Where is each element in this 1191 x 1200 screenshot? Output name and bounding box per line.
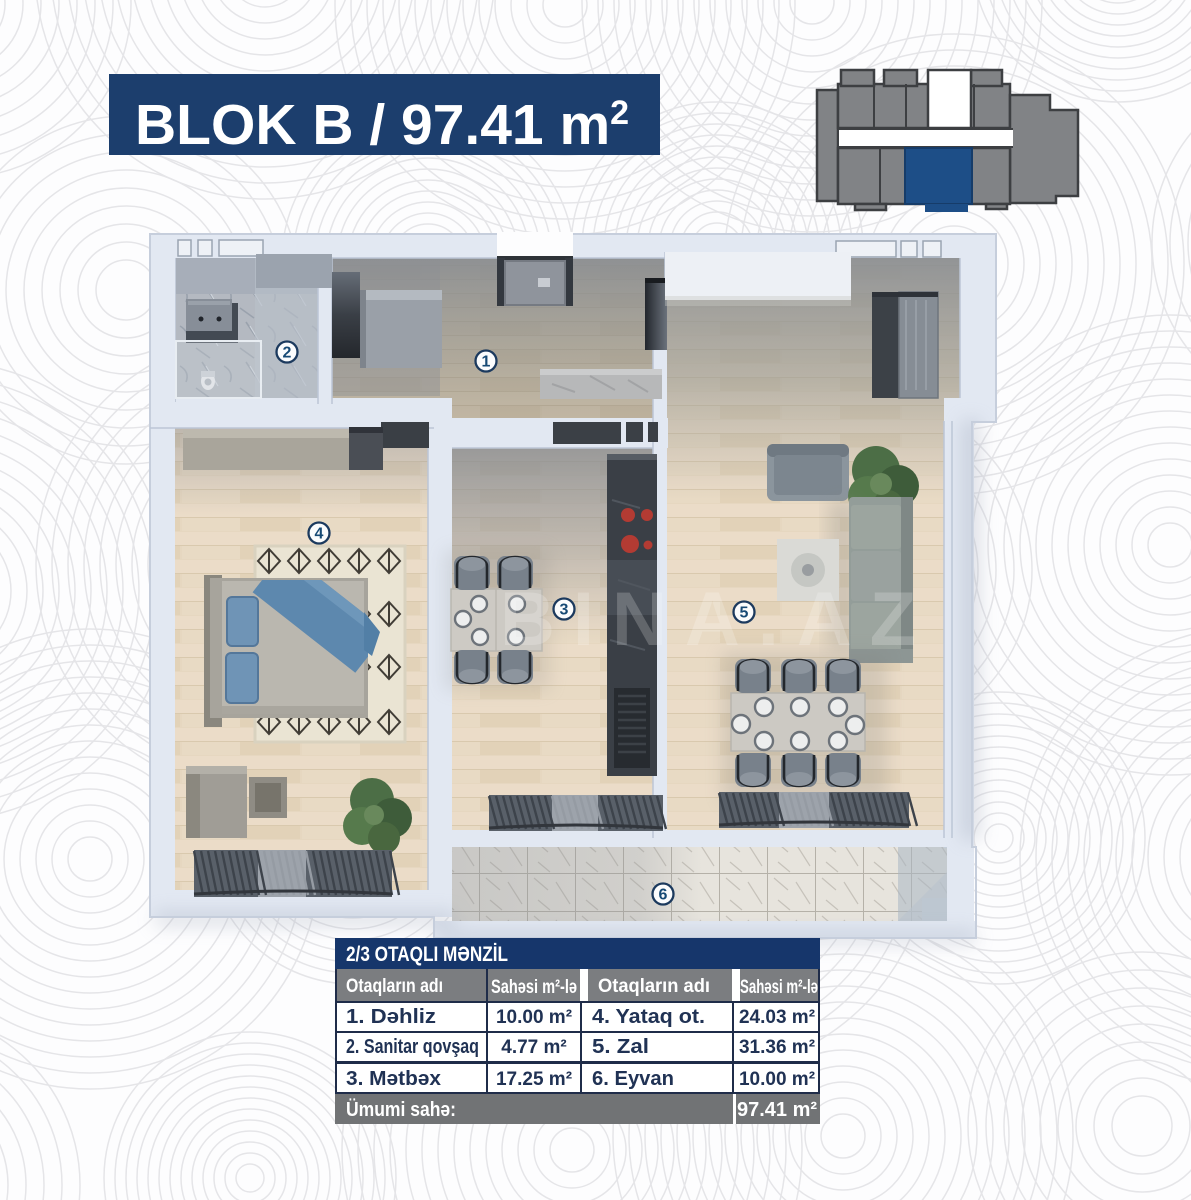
svg-text:4.77 m²: 4.77 m² <box>501 1037 566 1058</box>
svg-text:Sahəsi m²-lə: Sahəsi m²-lə <box>740 977 818 998</box>
svg-text:4. Yataq ot.: 4. Yataq ot. <box>592 1006 705 1028</box>
svg-text:1: 1 <box>482 354 491 371</box>
svg-text:4: 4 <box>315 526 324 543</box>
svg-text:2: 2 <box>283 345 292 362</box>
svg-text:2. Sanitar qovşaq: 2. Sanitar qovşaq <box>346 1036 479 1058</box>
svg-text:3: 3 <box>560 602 569 619</box>
svg-text:97.41 m²: 97.41 m² <box>737 1099 817 1121</box>
svg-text:Ümumi sahə:: Ümumi sahə: <box>346 1098 456 1121</box>
svg-text:1. Dəhliz: 1. Dəhliz <box>346 1006 436 1028</box>
svg-text:Otaqların adı: Otaqların adı <box>346 976 443 997</box>
svg-text:6: 6 <box>659 887 668 904</box>
svg-text:17.25 m²: 17.25 m² <box>496 1069 572 1090</box>
svg-text:Otaqların adı: Otaqların adı <box>598 976 710 997</box>
svg-text:10.00 m²: 10.00 m² <box>496 1007 572 1028</box>
svg-text:6. Eyvan: 6. Eyvan <box>592 1068 674 1090</box>
svg-text:2/3 OTAQLI MƏNZİL: 2/3 OTAQLI MƏNZİL <box>346 943 508 966</box>
svg-text:10.00 m²: 10.00 m² <box>739 1069 815 1090</box>
svg-text:5: 5 <box>740 605 749 622</box>
svg-text:3. Mətbəx: 3. Mətbəx <box>346 1068 441 1090</box>
svg-text:31.36 m²: 31.36 m² <box>739 1037 815 1058</box>
svg-text:Sahəsi m²-lə: Sahəsi m²-lə <box>491 977 577 998</box>
svg-text:24.03 m²: 24.03 m² <box>739 1007 815 1028</box>
svg-text:5. Zal: 5. Zal <box>592 1036 649 1058</box>
